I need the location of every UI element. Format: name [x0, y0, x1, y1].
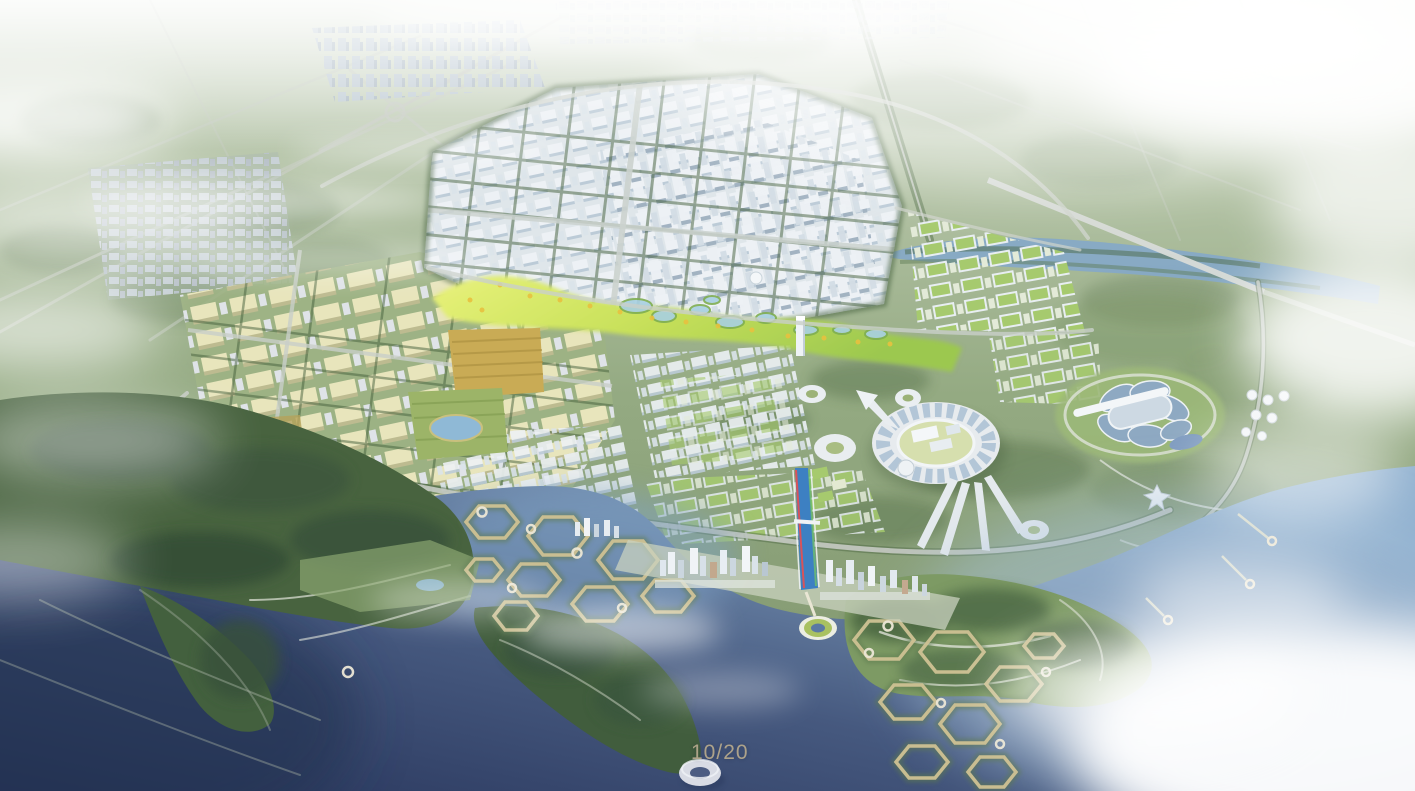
wetland-pond	[430, 415, 482, 441]
masterplan-render	[0, 0, 1415, 791]
dome-building	[750, 272, 762, 284]
image-viewer: 10/20	[0, 0, 1415, 791]
pager-indicator: 10/20	[691, 741, 755, 765]
